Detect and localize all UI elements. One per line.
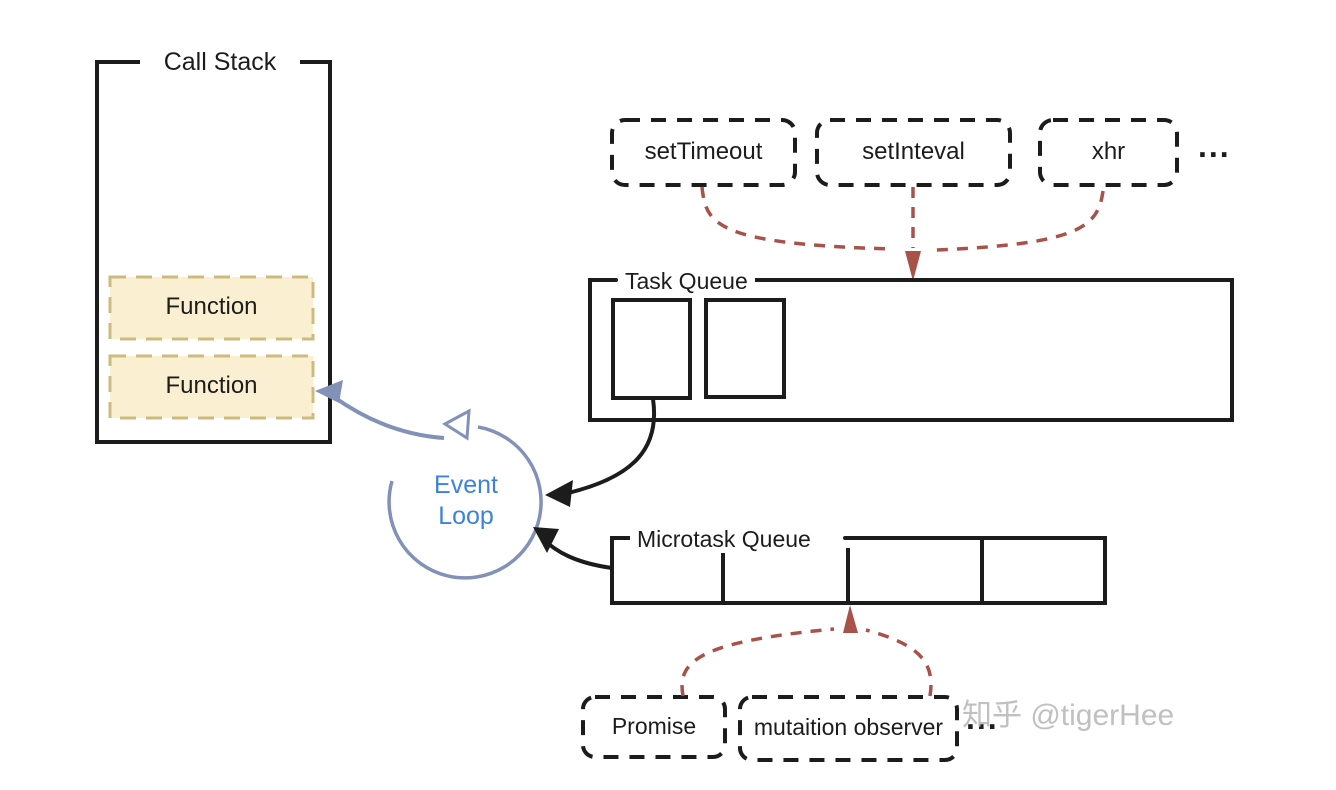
task-queue-task-2 xyxy=(706,300,784,397)
macrotask-ellipsis: ... xyxy=(1198,128,1231,165)
mutation-observer-label: mutaition observer xyxy=(740,714,957,741)
event-loop-arc-arrowhead-icon xyxy=(445,411,469,438)
watermark: 知乎 @tigerHee xyxy=(962,690,1242,734)
event-loop-label: Event Loop xyxy=(406,470,526,532)
xhr-label: xhr xyxy=(1040,138,1177,166)
microtask-queue-title: Microtask Queue xyxy=(630,526,818,553)
promise-label: Promise xyxy=(583,713,725,740)
task-queue-title: Task Queue xyxy=(618,268,755,295)
taskqueue-arrowhead-icon xyxy=(905,251,921,281)
event-loop-diagram: Call Stack Function Function setTimeout … xyxy=(0,0,1336,790)
taskqueue-to-eventloop-arrow xyxy=(568,399,654,493)
settimeout-label: setTimeout xyxy=(612,138,795,166)
event-loop-label-line1: Event xyxy=(406,470,526,501)
call-stack-frame-1-label: Function xyxy=(110,293,313,321)
event-loop-label-line2: Loop xyxy=(406,501,526,532)
eventloop-to-callstack-arrow xyxy=(334,397,444,438)
call-stack-title: Call Stack xyxy=(140,48,300,77)
microtask-arrowhead-icon xyxy=(843,605,858,633)
microtask-to-eventloop-arrow xyxy=(542,538,612,568)
task-queue-task-1 xyxy=(613,300,690,398)
taskqueue-to-eventloop-arrowhead-icon xyxy=(545,480,573,507)
setinteval-label: setInteval xyxy=(817,138,1010,166)
promise-to-microtask-arrow xyxy=(682,629,834,696)
xhr-to-taskqueue-arrow xyxy=(936,191,1103,250)
mutation-to-microtask-arrow xyxy=(866,630,931,696)
call-stack-frame-2-label: Function xyxy=(110,372,313,400)
settimeout-to-taskqueue-arrow xyxy=(702,187,892,249)
